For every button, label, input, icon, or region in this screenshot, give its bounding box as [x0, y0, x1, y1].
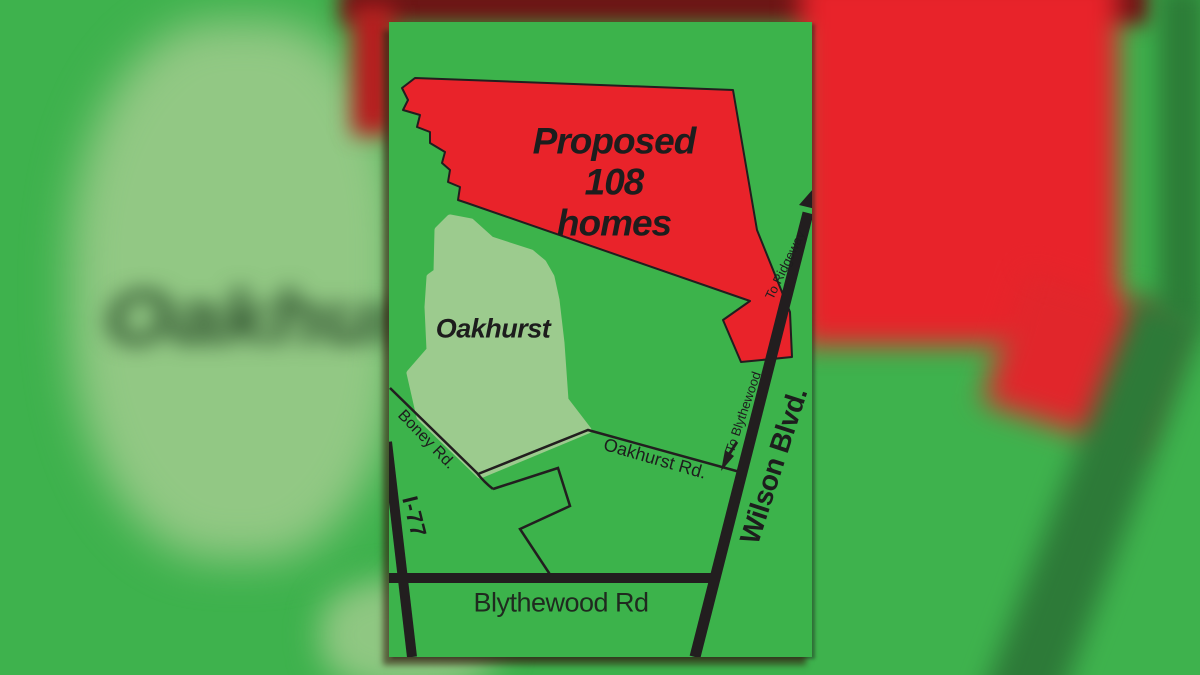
blythewood-rd-label: Blythewood Rd [473, 588, 648, 619]
map-panel: Proposed 108 homes Oakhurst Boney Rd. I-… [389, 22, 812, 657]
oakhurst-neighborhood-label: Oakhurst [436, 314, 551, 345]
proposed-homes-label: Proposed 108 homes [533, 121, 696, 244]
background-blurred-dark-strip [1158, 0, 1200, 325]
proposed-homes-line2: 108 [533, 162, 696, 203]
proposed-homes-line1: Proposed [533, 121, 696, 162]
proposed-homes-line3: homes [533, 203, 696, 244]
news-map-graphic: Oakhurst Proposed [0, 0, 1200, 675]
background-blurred-red-sliver [352, 5, 394, 135]
